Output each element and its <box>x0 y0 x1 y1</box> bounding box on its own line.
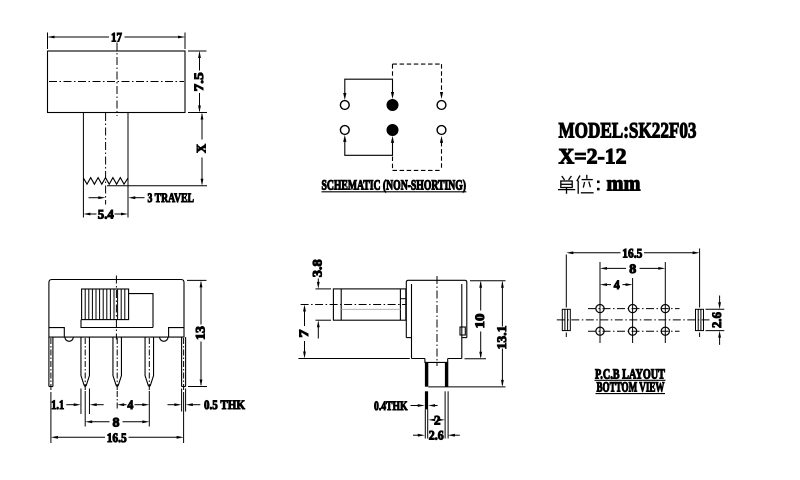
svg-text:8: 8 <box>629 261 637 276</box>
svg-text:13.1: 13.1 <box>494 326 509 350</box>
svg-text:1.1: 1.1 <box>51 397 64 412</box>
svg-text:17: 17 <box>111 30 122 45</box>
svg-text:8: 8 <box>113 414 121 429</box>
svg-text:3 TRAVEL: 3 TRAVEL <box>148 190 195 205</box>
svg-text:4: 4 <box>127 397 133 412</box>
svg-text:0.5 THK: 0.5 THK <box>204 397 246 412</box>
svg-text:mm: mm <box>607 171 641 196</box>
svg-text:10: 10 <box>472 314 487 329</box>
svg-text:MODEL:SK22F03: MODEL:SK22F03 <box>559 117 697 142</box>
svg-text:X: X <box>193 143 208 153</box>
svg-text:5.4: 5.4 <box>98 206 114 221</box>
svg-text:3.8: 3.8 <box>310 259 325 278</box>
svg-text:2.6: 2.6 <box>709 312 724 328</box>
svg-text:X=2-12: X=2-12 <box>559 143 627 168</box>
svg-text:7.5: 7.5 <box>191 72 206 92</box>
svg-text:7: 7 <box>296 329 311 338</box>
svg-text:2.6: 2.6 <box>429 428 444 443</box>
svg-text:4: 4 <box>614 277 620 292</box>
svg-text:0.4THK: 0.4THK <box>374 398 408 413</box>
svg-text:16.5: 16.5 <box>622 245 642 260</box>
svg-text:13: 13 <box>192 325 207 340</box>
svg-text:16.5: 16.5 <box>107 430 127 445</box>
